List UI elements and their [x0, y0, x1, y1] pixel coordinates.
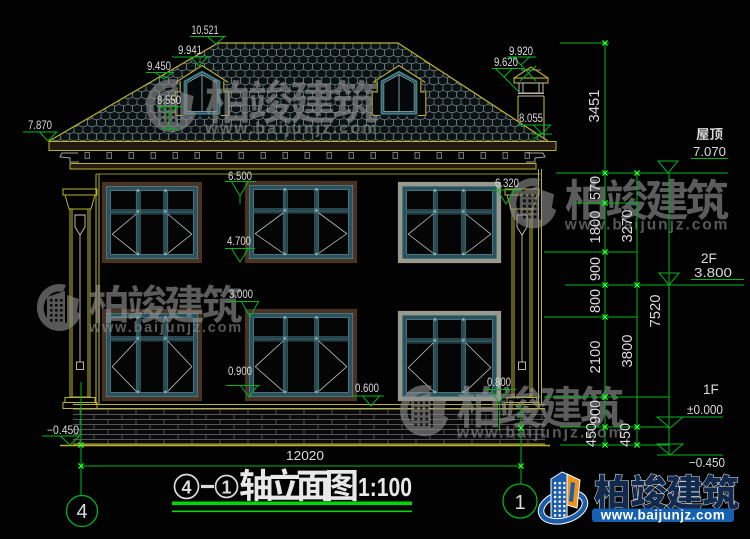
svg-text:www.baijunjz.com: www.baijunjz.com — [88, 320, 243, 336]
svg-text:450: 450 — [618, 423, 634, 447]
svg-text:www.baijunjz.com: www.baijunjz.com — [600, 508, 726, 523]
svg-text:9.450: 9.450 — [147, 61, 171, 73]
svg-text:www.baijunjz.com: www.baijunjz.com — [204, 119, 379, 137]
svg-text:0.800: 0.800 — [487, 377, 511, 389]
svg-text:10.521: 10.521 — [192, 25, 219, 37]
svg-text:3451: 3451 — [587, 90, 603, 123]
svg-text:9.620: 9.620 — [494, 57, 518, 69]
svg-text:±0.000: ±0.000 — [687, 402, 723, 417]
svg-text:6.320: 6.320 — [495, 178, 519, 190]
svg-text:3800: 3800 — [620, 335, 636, 368]
svg-text:7.870: 7.870 — [28, 120, 52, 132]
svg-text:2F: 2F — [701, 251, 717, 266]
svg-text:8.550: 8.550 — [157, 95, 181, 107]
svg-text:3.000: 3.000 — [229, 289, 253, 301]
svg-text:1: 1 — [514, 492, 525, 514]
svg-text:4: 4 — [181, 478, 191, 498]
svg-text:−0.450: −0.450 — [47, 425, 79, 437]
svg-text:3270: 3270 — [620, 210, 636, 243]
svg-text:0.600: 0.600 — [355, 383, 379, 395]
svg-text:900: 900 — [588, 257, 604, 281]
svg-text:1: 1 — [221, 478, 231, 498]
svg-text:450: 450 — [584, 423, 600, 447]
svg-text:1:100: 1:100 — [358, 472, 412, 502]
svg-text:9.941: 9.941 — [178, 45, 202, 57]
svg-text:1F: 1F — [703, 382, 719, 397]
svg-text:8.055: 8.055 — [519, 113, 543, 125]
svg-text:4: 4 — [76, 501, 87, 523]
svg-text:1800: 1800 — [588, 211, 604, 244]
svg-text:7.070: 7.070 — [693, 144, 726, 159]
svg-text:−0.450: −0.450 — [689, 455, 725, 470]
svg-text:800: 800 — [588, 289, 604, 313]
svg-text:2100: 2100 — [588, 341, 604, 374]
svg-text:4.700: 4.700 — [227, 236, 251, 248]
svg-text:0.900: 0.900 — [228, 366, 252, 378]
svg-text:3.800: 3.800 — [694, 265, 732, 280]
svg-text:900: 900 — [588, 400, 604, 424]
svg-text:12020: 12020 — [286, 449, 324, 463]
svg-text:570: 570 — [588, 176, 604, 200]
svg-text:7520: 7520 — [648, 295, 664, 328]
